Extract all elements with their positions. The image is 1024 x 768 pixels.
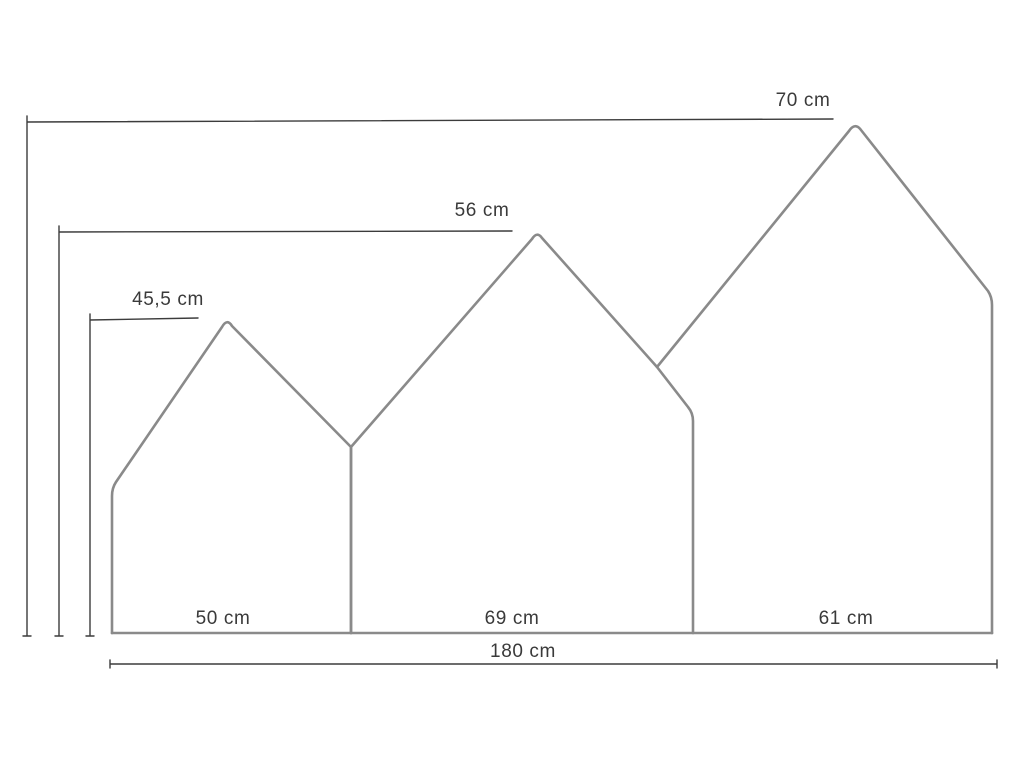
house-outlines xyxy=(112,126,992,633)
label-width-panel-1: 50 cm xyxy=(196,608,251,629)
dimension-diagram: 70 cm 56 cm 45,5 cm 50 cm 69 cm 61 cm 18… xyxy=(0,0,1024,768)
house-panel-1-outline xyxy=(112,322,351,633)
house-panel-3-outline xyxy=(657,126,992,633)
label-height-panel-1: 45,5 cm xyxy=(132,289,204,310)
diagram-page: 70 cm 56 cm 45,5 cm 50 cm 69 cm 61 cm 18… xyxy=(0,0,1024,768)
label-width-panel-2: 69 cm xyxy=(485,608,540,629)
dimension-lines xyxy=(23,116,997,668)
height-dim-line-56 xyxy=(55,226,512,636)
height-dim-line-45 xyxy=(86,314,198,636)
height-dim-line-70 xyxy=(23,116,833,636)
label-total-width: 180 cm xyxy=(490,641,556,662)
label-height-panel-2: 56 cm xyxy=(455,200,510,221)
label-height-panel-3: 70 cm xyxy=(776,90,831,111)
label-width-panel-3: 61 cm xyxy=(819,608,874,629)
house-panel-2-outline xyxy=(351,235,693,633)
dimension-labels: 70 cm 56 cm 45,5 cm 50 cm 69 cm 61 cm 18… xyxy=(132,90,873,662)
